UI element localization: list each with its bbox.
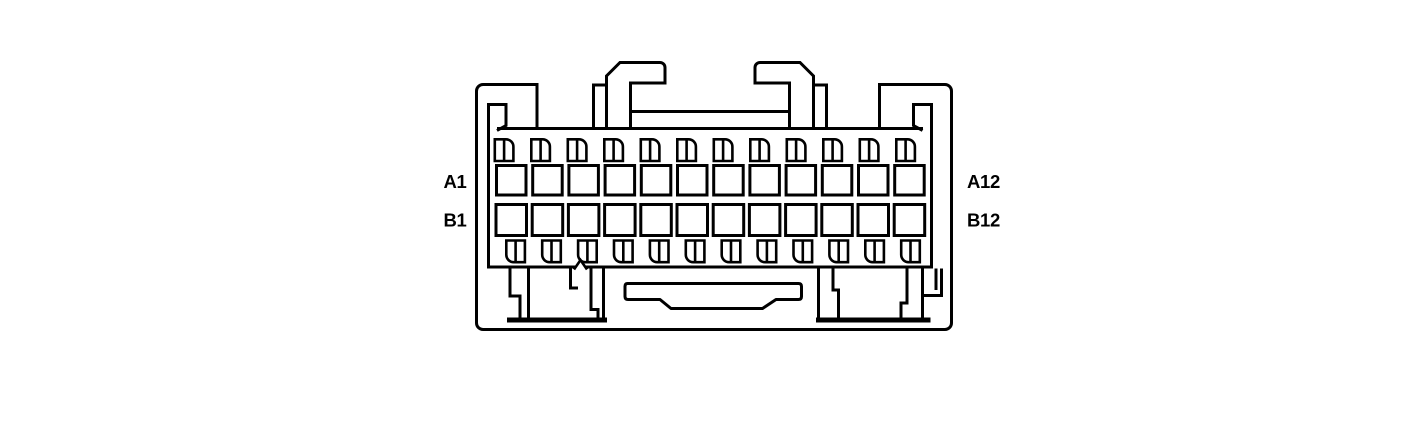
foot-right-base — [816, 318, 931, 323]
key-slot-row-top — [495, 139, 915, 161]
foot-left-base — [507, 318, 607, 323]
latch-left-outer-post — [594, 85, 607, 129]
latch-left — [594, 63, 666, 129]
pin-label-a12: A12 — [967, 171, 1000, 192]
pin-label-b12: B12 — [967, 210, 1000, 231]
pin-label-a1: A1 — [443, 171, 466, 192]
pin-row-a — [497, 166, 925, 196]
pin-row-b — [496, 205, 925, 236]
latch-right — [755, 63, 827, 129]
cpa-lock-slot — [625, 284, 802, 309]
foot-left — [507, 260, 607, 323]
pin-label-b1: B1 — [443, 210, 466, 231]
latch-left-hook — [607, 63, 666, 129]
latch-right-outer-post — [814, 85, 827, 129]
connector-diagram: A1 B1 A12 B12 — [0, 0, 1426, 441]
connector-line-art — [477, 63, 952, 330]
latch-right-hook — [755, 63, 814, 129]
key-slot-row-bottom — [506, 241, 920, 263]
foot-right — [816, 269, 942, 323]
connector-diagram-page: A1 B1 A12 B12 — [0, 0, 1426, 441]
